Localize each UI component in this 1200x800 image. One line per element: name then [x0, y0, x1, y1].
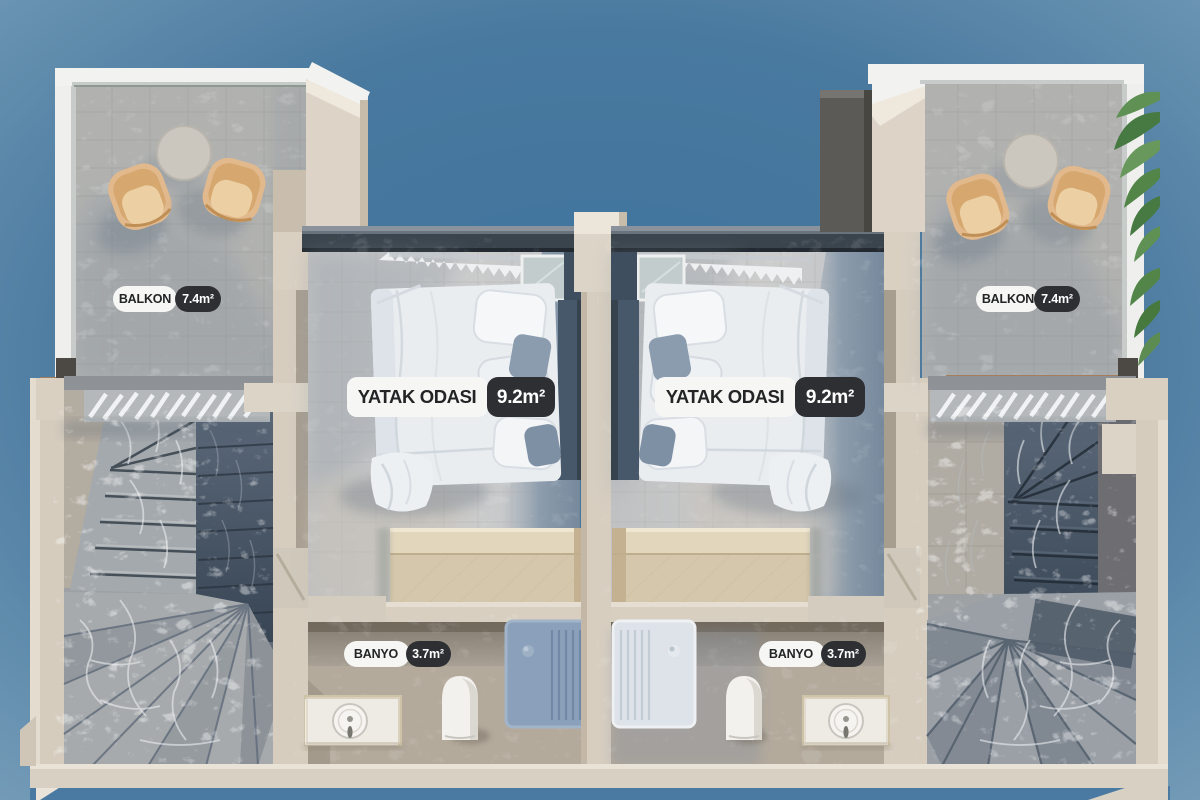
- svg-text:9.2m²: 9.2m²: [806, 387, 854, 408]
- svg-text:BALKON: BALKON: [119, 292, 171, 306]
- svg-text:BANYO: BANYO: [769, 647, 814, 661]
- svg-text:3.7m²: 3.7m²: [827, 647, 859, 661]
- svg-text:3.7m²: 3.7m²: [412, 647, 444, 661]
- svg-text:7.4m²: 7.4m²: [1041, 292, 1073, 306]
- svg-text:BANYO: BANYO: [354, 647, 399, 661]
- svg-text:9.2m²: 9.2m²: [497, 387, 545, 408]
- svg-text:BALKON: BALKON: [982, 292, 1034, 306]
- svg-text:YATAK ODASI: YATAK ODASI: [358, 386, 477, 407]
- svg-text:7.4m²: 7.4m²: [182, 292, 214, 306]
- svg-text:YATAK ODASI: YATAK ODASI: [666, 386, 785, 407]
